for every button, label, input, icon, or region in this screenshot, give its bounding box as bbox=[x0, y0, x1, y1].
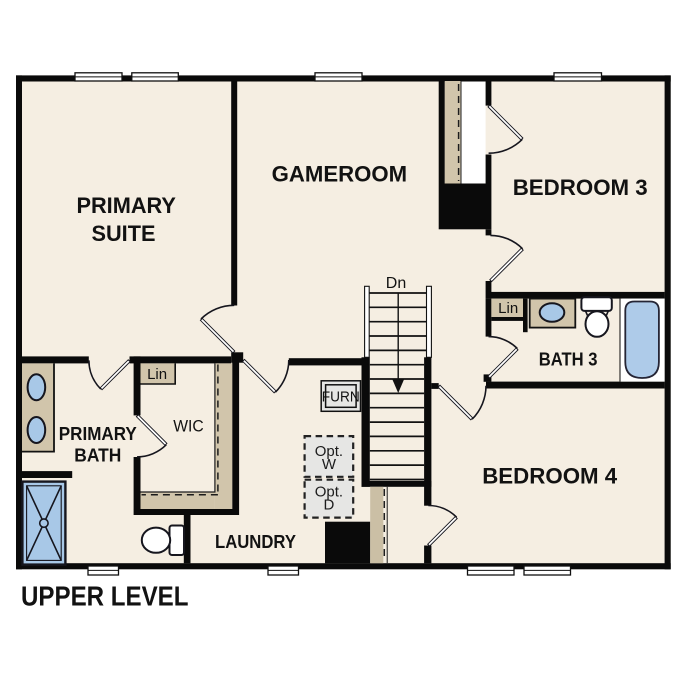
svg-text:GAMEROOM: GAMEROOM bbox=[272, 162, 408, 187]
svg-text:BEDROOM 4: BEDROOM 4 bbox=[482, 463, 617, 488]
svg-text:BATH: BATH bbox=[74, 445, 121, 466]
svg-text:FURN: FURN bbox=[322, 388, 360, 405]
svg-text:Dn: Dn bbox=[386, 275, 406, 292]
svg-text:UPPER LEVEL: UPPER LEVEL bbox=[21, 581, 189, 612]
svg-text:W: W bbox=[322, 456, 337, 473]
svg-text:BEDROOM 3: BEDROOM 3 bbox=[513, 175, 648, 200]
svg-text:PRIMARY: PRIMARY bbox=[76, 193, 176, 218]
svg-text:SUITE: SUITE bbox=[92, 221, 156, 246]
svg-text:Lin: Lin bbox=[147, 366, 167, 383]
svg-text:D: D bbox=[323, 497, 334, 514]
svg-text:LAUNDRY: LAUNDRY bbox=[215, 531, 297, 552]
svg-text:WIC: WIC bbox=[173, 418, 204, 436]
svg-text:PRIMARY: PRIMARY bbox=[59, 423, 138, 444]
svg-text:BATH 3: BATH 3 bbox=[539, 348, 598, 369]
svg-text:Lin: Lin bbox=[498, 300, 518, 317]
